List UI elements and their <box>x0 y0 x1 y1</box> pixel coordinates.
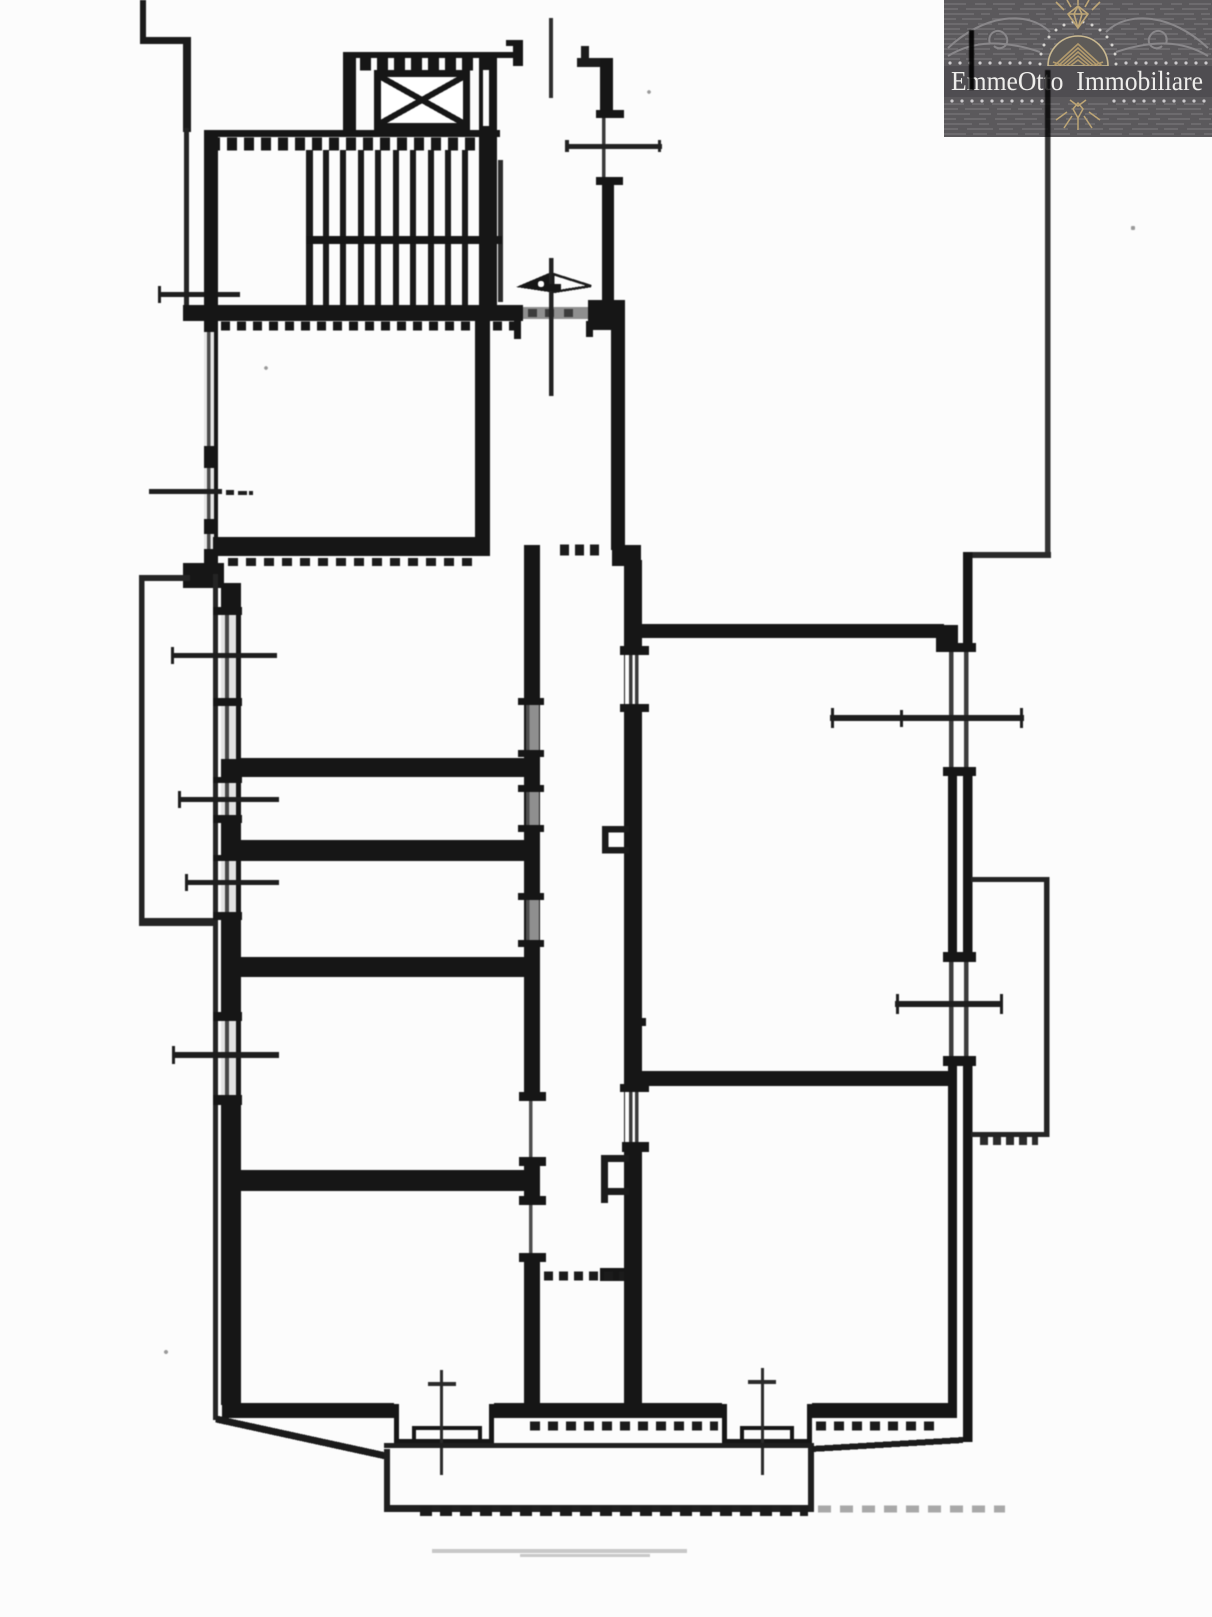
svg-text:EmmeOtto Immobiliare: EmmeOtto Immobiliare <box>951 66 1203 96</box>
